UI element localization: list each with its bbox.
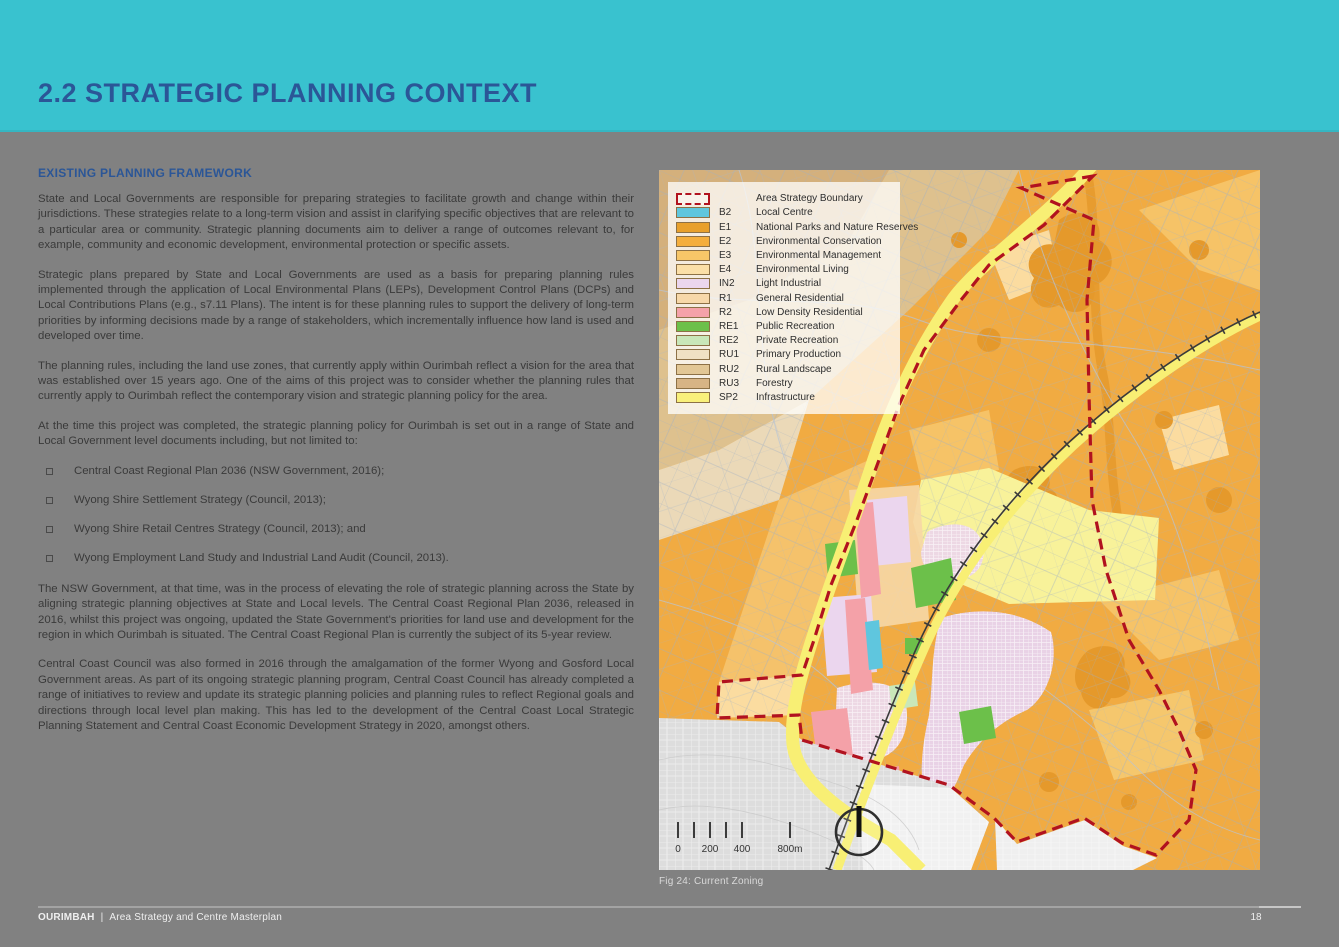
scale-label: 200 xyxy=(702,844,719,855)
scale-label: 400 xyxy=(734,844,751,855)
bullet-icon xyxy=(46,497,53,504)
legend-row: B2Local Centre xyxy=(676,206,892,220)
footer-divider xyxy=(38,906,1301,908)
list-item: Wyong Employment Land Study and Industri… xyxy=(38,551,634,566)
legend-row: RE1Public Recreation xyxy=(676,320,892,334)
page-title: 2.2 STRATEGIC PLANNING CONTEXT xyxy=(38,78,537,109)
legend-row: E2Environmental Conservation xyxy=(676,235,892,249)
footer-doc-title: OURIMBAH | Area Strategy and Centre Mast… xyxy=(38,912,282,923)
paragraph: Central Coast Council was also formed in… xyxy=(38,657,634,734)
body-text-column: EXISTING PLANNING FRAMEWORK State and Lo… xyxy=(38,166,634,748)
list-item: Central Coast Regional Plan 2036 (NSW Go… xyxy=(38,464,634,479)
legend-swatch-r1 xyxy=(676,293,710,304)
legend-row: IN2Light Industrial xyxy=(676,277,892,291)
legend-swatch-in2 xyxy=(676,278,710,289)
figure-caption: Fig 24: Current Zoning xyxy=(659,876,1260,887)
legend-swatch-e4 xyxy=(676,264,710,275)
document-page: 2.2 STRATEGIC PLANNING CONTEXT EXISTING … xyxy=(0,0,1339,947)
legend-row-boundary: Area Strategy Boundary xyxy=(676,192,892,206)
legend-swatch-e1 xyxy=(676,222,710,233)
scale-label: 0 xyxy=(675,844,681,855)
boundary-swatch-icon xyxy=(676,193,710,205)
zoning-map: 0 200 400 800m Area Strategy Bo xyxy=(659,170,1260,870)
legend-swatch-b2 xyxy=(676,207,710,218)
legend-swatch-ru3 xyxy=(676,378,710,389)
legend-swatch-ru1 xyxy=(676,349,710,360)
legend-row: RE2Private Recreation xyxy=(676,334,892,348)
strategy-document-list: Central Coast Regional Plan 2036 (NSW Go… xyxy=(38,464,634,566)
legend-row: E3Environmental Management xyxy=(676,249,892,263)
list-item: Wyong Shire Retail Centres Strategy (Cou… xyxy=(38,522,634,537)
list-item: Wyong Shire Settlement Strategy (Council… xyxy=(38,493,634,508)
paragraph: Strategic plans prepared by State and Lo… xyxy=(38,268,634,345)
zoning-map-figure: 0 200 400 800m Area Strategy Bo xyxy=(659,170,1260,887)
legend-row: RU1Primary Production xyxy=(676,348,892,362)
subsection-heading: EXISTING PLANNING FRAMEWORK xyxy=(38,166,634,180)
scale-label: 800m xyxy=(777,844,802,855)
legend-swatch-r2 xyxy=(676,307,710,318)
legend-row: RU2Rural Landscape xyxy=(676,362,892,376)
legend-row: E4Environmental Living xyxy=(676,263,892,277)
bullet-icon xyxy=(46,526,53,533)
paragraph: The planning rules, including the land u… xyxy=(38,359,634,405)
bullet-icon xyxy=(46,468,53,475)
legend-row: E1National Parks and Nature Reserves xyxy=(676,220,892,234)
legend-swatch-e2 xyxy=(676,236,710,247)
legend-row: SP2Infrastructure xyxy=(676,391,892,405)
legend-swatch-sp2 xyxy=(676,392,710,403)
paragraph: At the time this project was completed, … xyxy=(38,419,634,450)
bullet-icon xyxy=(46,555,53,562)
legend-row: R2Low Density Residential xyxy=(676,306,892,320)
paragraph: State and Local Governments are responsi… xyxy=(38,192,634,254)
legend-swatch-ru2 xyxy=(676,364,710,375)
legend-row: RU3Forestry xyxy=(676,376,892,390)
legend-swatch-re2 xyxy=(676,335,710,346)
page-number: 18 xyxy=(1236,912,1276,923)
map-legend: Area Strategy Boundary B2Local Centre E1… xyxy=(668,182,900,414)
legend-row: R1General Residential xyxy=(676,291,892,305)
section-header-band: 2.2 STRATEGIC PLANNING CONTEXT xyxy=(0,0,1339,132)
paragraph: The NSW Government, at that time, was in… xyxy=(38,582,634,644)
legend-swatch-e3 xyxy=(676,250,710,261)
legend-swatch-re1 xyxy=(676,321,710,332)
